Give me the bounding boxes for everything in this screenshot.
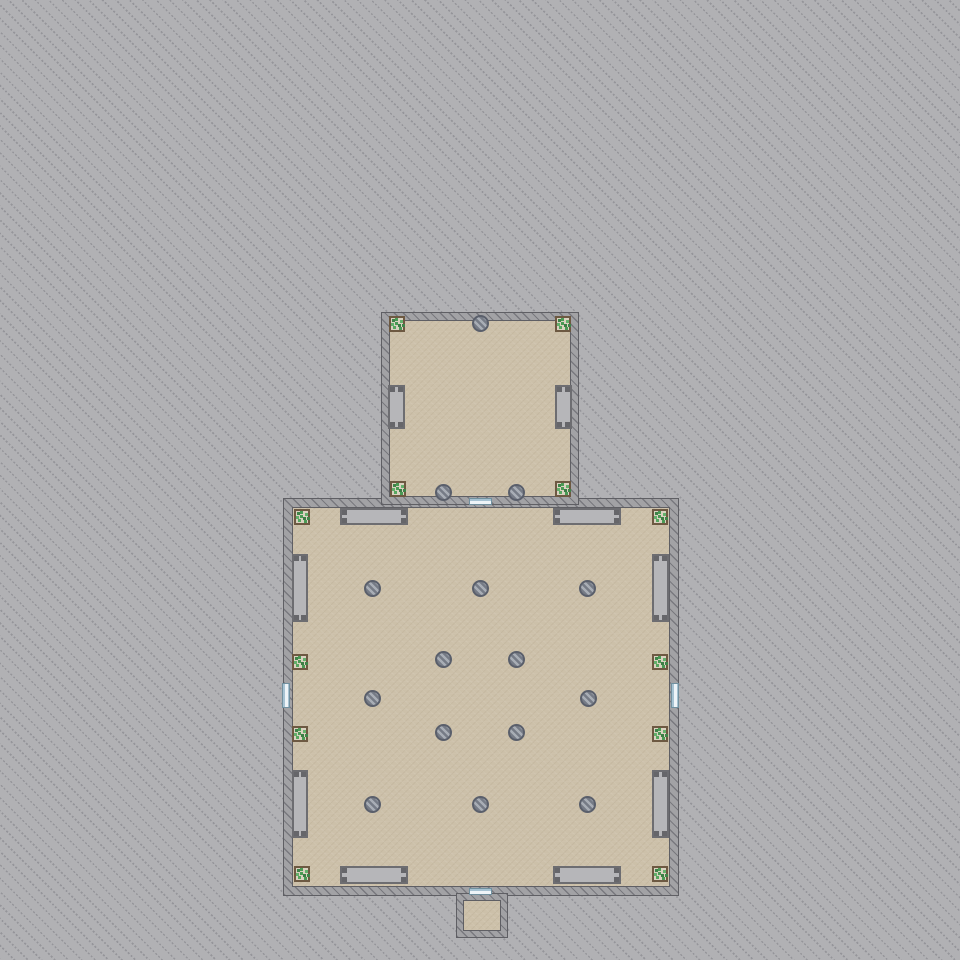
window-bench[interactable] [553, 508, 621, 525]
floor-vent[interactable] [472, 315, 489, 332]
floor-vent[interactable] [364, 580, 381, 597]
door-main-east[interactable] [671, 683, 679, 708]
plant-foliage [658, 872, 661, 875]
window-bench[interactable] [292, 770, 308, 838]
plant-foliage [658, 515, 661, 518]
potted-plant[interactable] [652, 509, 668, 525]
potted-plant[interactable] [390, 481, 406, 497]
plant-foliage [298, 732, 301, 735]
potted-plant[interactable] [652, 866, 668, 882]
plant-foliage [658, 732, 661, 735]
plant-foliage [561, 487, 564, 490]
potted-plant[interactable] [555, 481, 571, 497]
plant-foliage [300, 872, 303, 875]
window-bench[interactable] [652, 554, 669, 622]
room-main-hall-walls [283, 498, 679, 896]
window-bench[interactable] [553, 866, 621, 884]
floor-vent[interactable] [435, 484, 452, 501]
window-bench[interactable] [340, 866, 408, 884]
room-main-hall-floor[interactable] [292, 507, 670, 887]
plant-foliage [561, 322, 564, 325]
window-bench[interactable] [388, 385, 405, 429]
floor-vent[interactable] [579, 580, 596, 597]
window-bench[interactable] [292, 554, 308, 622]
potted-plant[interactable] [555, 316, 571, 332]
scene [0, 0, 960, 960]
room-upper-room-walls [381, 312, 579, 505]
room-vestibule-floor[interactable] [463, 900, 501, 931]
potted-plant[interactable] [292, 654, 308, 670]
potted-plant[interactable] [294, 509, 310, 525]
floor-vent[interactable] [472, 580, 489, 597]
potted-plant[interactable] [389, 316, 405, 332]
potted-plant[interactable] [652, 654, 668, 670]
floor-vent[interactable] [579, 796, 596, 813]
floor-vent[interactable] [435, 651, 452, 668]
door-upper-to-main[interactable] [469, 498, 492, 505]
floor-vent[interactable] [472, 796, 489, 813]
plant-foliage [658, 660, 661, 663]
floor-vent[interactable] [508, 484, 525, 501]
game-viewport [0, 0, 960, 960]
window-bench[interactable] [555, 385, 572, 429]
floor-vent[interactable] [580, 690, 597, 707]
floor-vent[interactable] [508, 651, 525, 668]
door-main-west[interactable] [282, 683, 290, 708]
potted-plant[interactable] [294, 866, 310, 882]
plant-foliage [298, 660, 301, 663]
plant-foliage [300, 515, 303, 518]
floor-vent[interactable] [435, 724, 452, 741]
floor-vent[interactable] [364, 690, 381, 707]
room-upper-room-floor[interactable] [389, 320, 571, 497]
plant-foliage [396, 487, 399, 490]
window-bench[interactable] [340, 508, 408, 525]
room-vestibule-walls [456, 893, 508, 938]
plant-foliage [395, 322, 398, 325]
window-bench[interactable] [652, 770, 669, 838]
door-main-to-vestibule[interactable] [469, 888, 492, 895]
floor-vent[interactable] [508, 724, 525, 741]
potted-plant[interactable] [292, 726, 308, 742]
potted-plant[interactable] [652, 726, 668, 742]
floor-vent[interactable] [364, 796, 381, 813]
